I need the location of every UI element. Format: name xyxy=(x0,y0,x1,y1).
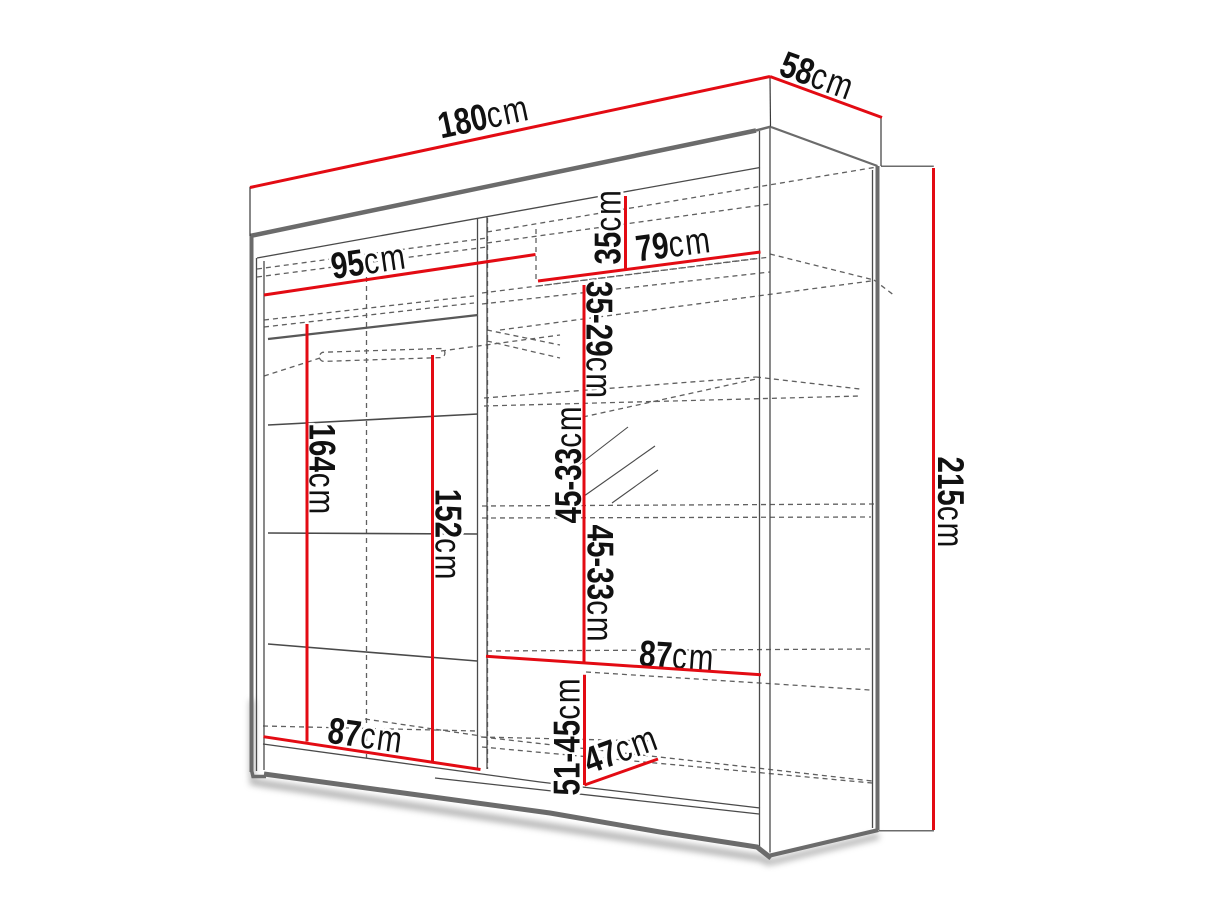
svg-text:51-45cm: 51-45cm xyxy=(547,676,588,795)
svg-text:87cm: 87cm xyxy=(638,634,717,680)
svg-text:35cm: 35cm xyxy=(588,188,629,264)
svg-text:215cm: 215cm xyxy=(929,457,970,550)
